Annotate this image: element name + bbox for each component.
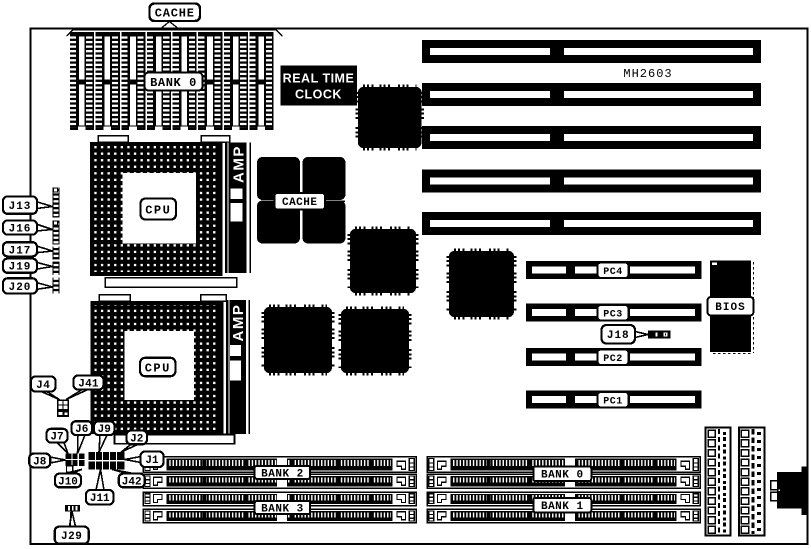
svg-text:BIOS: BIOS [715,302,745,314]
svg-text:J6: J6 [75,424,88,436]
svg-text:J9: J9 [98,424,111,436]
svg-text:J10: J10 [58,476,78,488]
svg-text:J2: J2 [130,433,143,445]
svg-text:CACHE: CACHE [155,7,195,21]
svg-text:J20: J20 [9,282,32,294]
svg-text:CPU: CPU [145,361,171,375]
svg-text:J4: J4 [36,380,50,392]
svg-text:J18: J18 [607,330,630,342]
svg-text:J11: J11 [90,493,110,505]
svg-text:AMP: AMP [230,304,247,342]
svg-text:J17: J17 [9,245,32,257]
svg-text:J29: J29 [61,531,82,543]
svg-text:CPU: CPU [145,203,171,217]
svg-text:J7: J7 [50,432,63,444]
svg-text:PC4: PC4 [603,267,623,278]
svg-text:J16: J16 [9,223,32,235]
svg-text:PC3: PC3 [603,309,623,320]
svg-text:PC2: PC2 [603,354,623,365]
svg-text:J19: J19 [9,262,32,274]
svg-text:BANK 2: BANK 2 [261,468,304,480]
svg-text:PC1: PC1 [603,396,623,407]
svg-text:J13: J13 [9,201,32,213]
svg-text:REAL TIME: REAL TIME [283,72,355,86]
svg-text:CACHE: CACHE [282,197,318,209]
svg-text:AMP: AMP [231,145,248,183]
svg-text:J1: J1 [145,455,159,467]
svg-text:BANK 1: BANK 1 [541,501,584,513]
svg-text:J42: J42 [122,476,142,488]
svg-text:MH2603: MH2603 [623,67,672,81]
svg-text:BANK 3: BANK 3 [261,503,304,515]
svg-text:BANK 0: BANK 0 [541,470,584,482]
svg-text:CLOCK: CLOCK [295,88,342,102]
svg-text:J8: J8 [33,456,47,468]
svg-text:BANK 0: BANK 0 [150,76,197,90]
svg-text:J41: J41 [78,378,99,390]
